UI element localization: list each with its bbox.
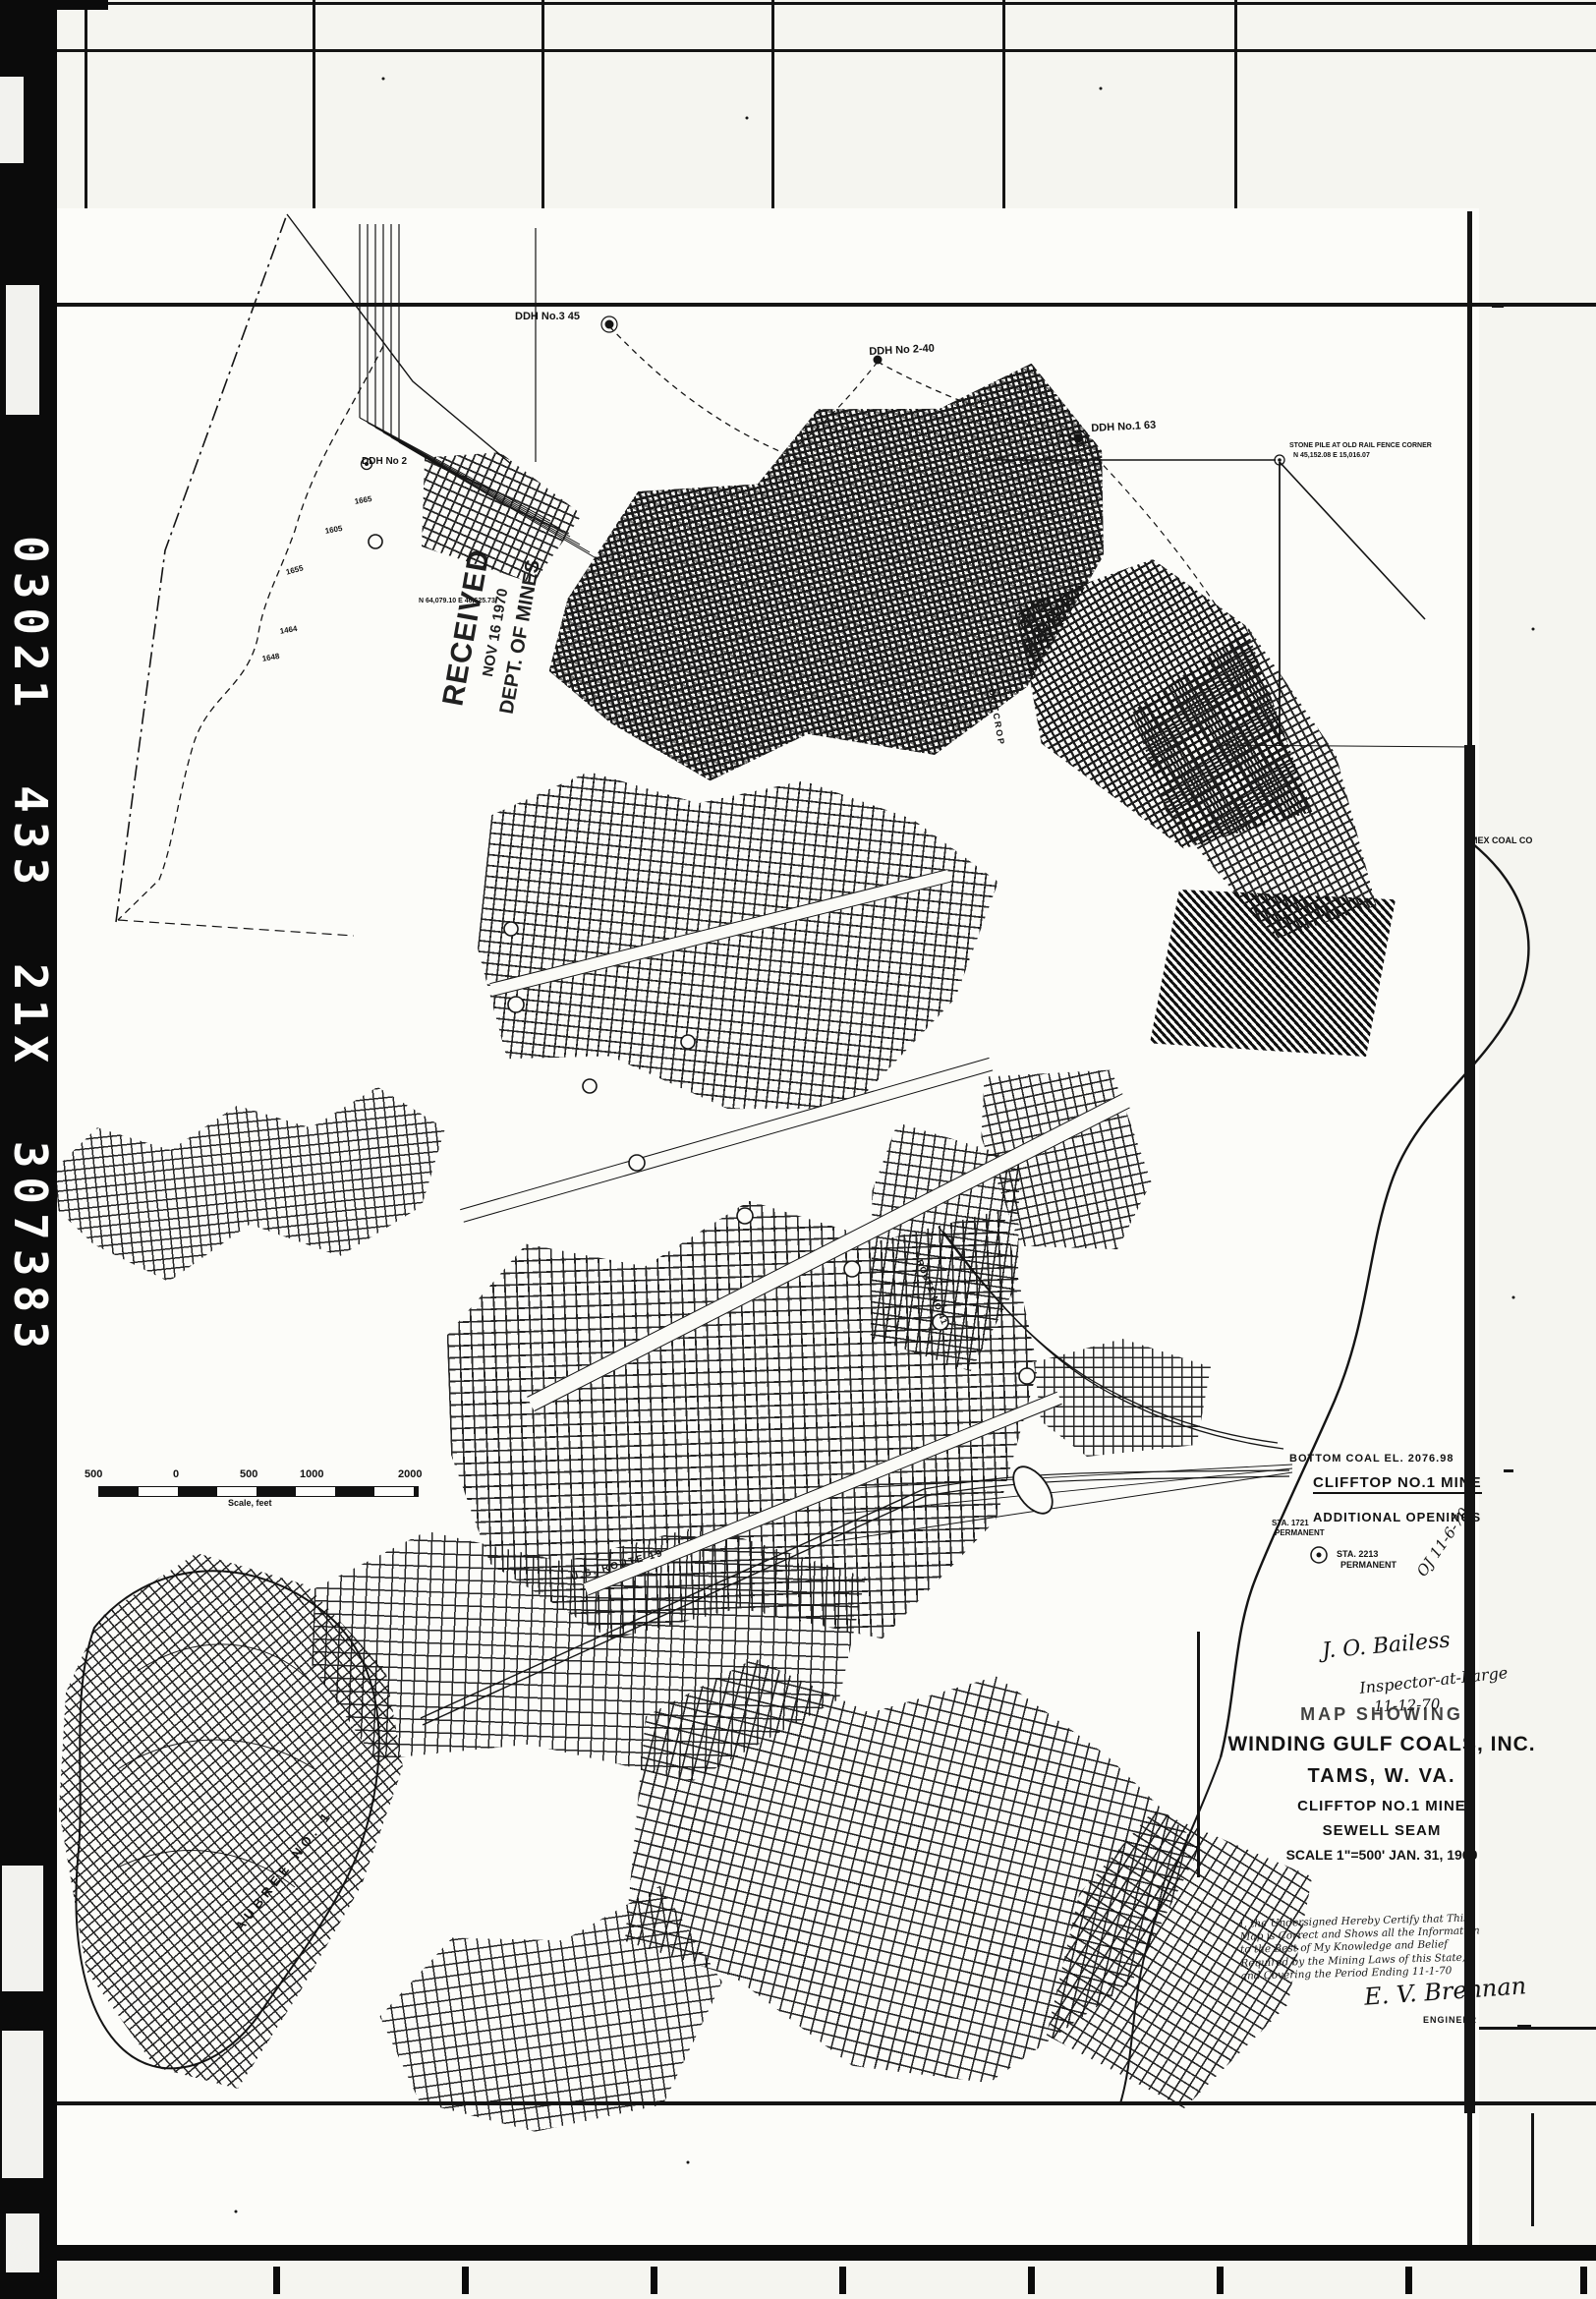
registration-tick [462,2267,469,2294]
film-bottom-bar [0,2245,1596,2261]
grid-line [0,2101,1596,2105]
registration-tick [1028,2267,1035,2294]
scale-bar [98,1486,419,1497]
mine-name: CLIFFTOP NO.1 MINE [1207,1798,1557,1814]
registration-tick [1405,2267,1412,2294]
map-label: 1655 [285,563,305,576]
sprocket-notch [0,77,24,163]
map-label: DDH No 2 [362,456,407,467]
map-label: ROUTE NO 41 [915,1258,950,1327]
registration-tick [839,2267,846,2294]
scale-and-date: SCALE 1"=500' JAN. 31, 1969 [1207,1847,1557,1863]
map-label: Scale, feet [228,1498,272,1508]
map-label: 1665 [354,494,372,506]
sprocket-notch [6,2213,39,2272]
sprocket-notch [2,1866,43,1991]
map-label: 1648 [261,652,280,663]
film-strip-edge: 03021 433 21X 307383 [0,0,57,2299]
company-name: WINDING GULF COALS, INC. [1207,1733,1557,1756]
company-location: TAMS, W. VA. [1207,1765,1557,1788]
map-label: AUBREE NO. 1 [232,1807,336,1933]
film-frame-line [1464,745,1475,2113]
scanned-mine-map: DDH No.3 45DDH No 2-40DDH No.1 63DDH No … [0,0,1596,2299]
registration-tick [273,2267,280,2294]
certification-statement: I, the Undersigned Hereby Certify that T… [1239,1911,1521,1983]
sprocket-notch [2,2031,43,2178]
map-label: 1605 [324,524,343,536]
seam-name: SEWELL SEAM [1207,1822,1557,1839]
map-label: 0 [173,1468,179,1480]
map-label: DDH No.3 45 [515,311,580,322]
map-label: DDH No.1 63 [1091,420,1157,434]
film-frame-id: 03021 433 21X 307383 [4,536,57,1357]
map-label: 2000 [398,1468,422,1480]
registration-tick [1217,2267,1224,2294]
map-label: STA. 1721 [1272,1519,1309,1527]
title-block-rule [1197,1632,1200,1877]
map-label: DDH No 2-40 [869,343,935,358]
sprocket-notch [6,285,39,415]
map-label: BOTTOM COAL EL. 2076.98 [1289,1453,1453,1465]
inspection-date: 11-12-70 [1374,1696,1441,1715]
map-label: 1464 [279,624,298,636]
map-label: MEX COAL CO [1470,835,1532,845]
grid-line [0,303,1596,307]
map-label: OUTCROP [987,688,1006,747]
map-label: 1000 [300,1468,323,1480]
registration-tick [1580,2267,1587,2294]
map-label: PERMANENT [1275,1528,1325,1537]
map-label: 500 [240,1468,257,1480]
map-label: STA. 2213 [1337,1549,1378,1559]
map-label: PERMANENT [1340,1560,1396,1570]
map-label: N 45,152.08 E 15,016.07 [1293,452,1370,459]
registration-tick [651,2267,657,2294]
title-block: MAP SHOWING WINDING GULF COALS, INC. TAM… [1207,1704,1557,1863]
map-label: U.S. ROUTE 19 [570,1548,665,1583]
map-label: STONE PILE AT OLD RAIL FENCE CORNER [1289,442,1432,449]
map-label: CLIFFTOP NO.1 MINE [1313,1474,1482,1494]
map-label: 500 [85,1468,102,1480]
